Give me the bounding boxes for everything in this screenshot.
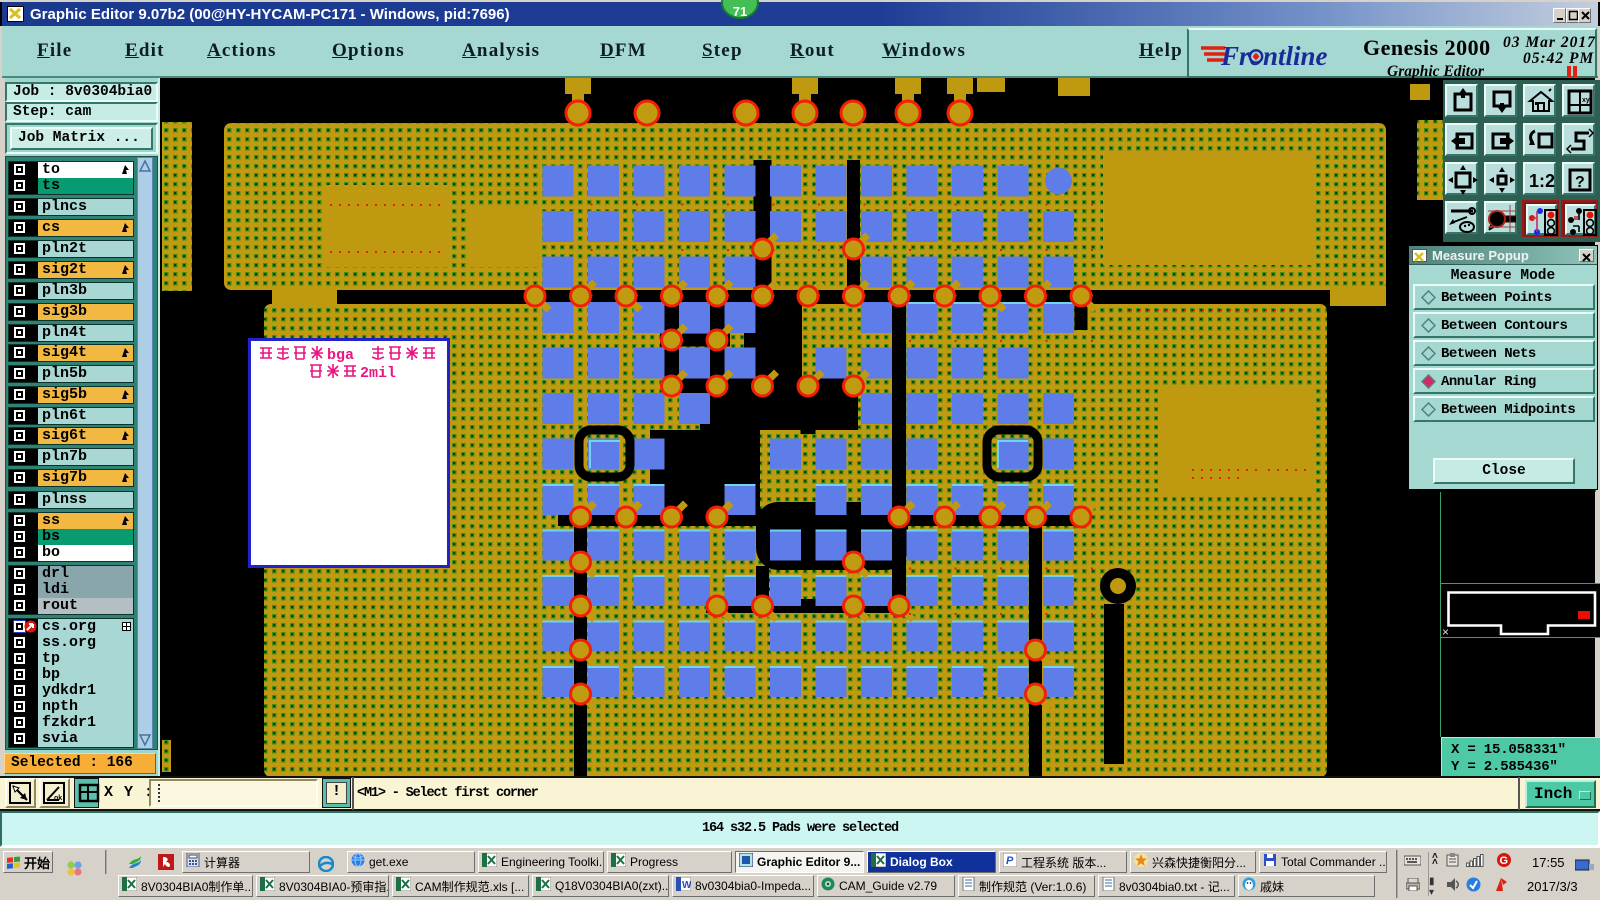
svg-text:bga: bga — [327, 347, 354, 364]
svg-text:W: W — [682, 880, 691, 891]
svg-text:P: P — [1006, 855, 1014, 867]
svg-text:ok: ok — [54, 795, 62, 802]
svg-text:1:2: 1:2 — [1529, 171, 1555, 191]
svg-text:2mil: 2mil — [360, 365, 396, 382]
svg-text:xy: xy — [1582, 97, 1590, 104]
svg-text:Frontline: Frontline — [1220, 41, 1328, 71]
svg-text:?: ? — [1575, 174, 1585, 191]
svg-text:G: G — [1500, 855, 1509, 867]
